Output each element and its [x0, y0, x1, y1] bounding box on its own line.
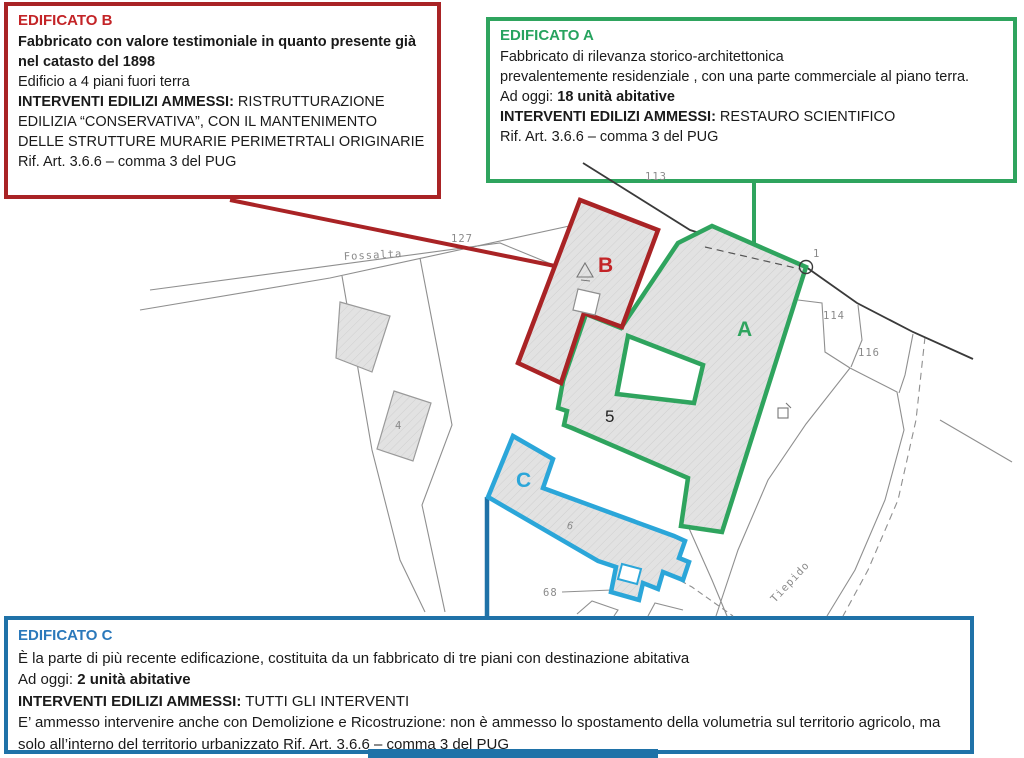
- point-label-1: 1: [813, 248, 820, 260]
- building-a-outline: [558, 226, 806, 532]
- road-edge-upper: [140, 215, 620, 310]
- callout-c-desc: È la parte di più recente edificazione, …: [18, 648, 960, 670]
- parcel-line-southeast: [688, 526, 727, 616]
- neighbour-buildings: [336, 302, 431, 461]
- parcel-114-boundary: [798, 300, 850, 368]
- well-symbol: [778, 403, 791, 418]
- bottom-accent-bar: [368, 749, 658, 758]
- callout-b-description: Fabbricato con valore testimoniale in qu…: [18, 32, 427, 72]
- small-parcel-line-1: [577, 601, 618, 616]
- callout-a-title: EDIFICATO A: [500, 26, 1003, 46]
- callout-a-units: Ad oggi: 18 unità abitative: [500, 87, 1003, 107]
- callout-c-title: EDIFICATO C: [18, 625, 960, 647]
- building-c-outline: [488, 436, 689, 600]
- triangle-symbol: [577, 263, 593, 281]
- building-b-courtyard: [573, 289, 600, 315]
- road-label-fossalta: Fossalta: [344, 248, 403, 263]
- parcel-label-127: 127: [451, 233, 473, 245]
- parcel-boundary-mid: [420, 258, 452, 612]
- callout-c-units: Ad oggi: 2 unità abitative: [18, 669, 960, 691]
- planning-map-page: EDIFICATO B Fabbricato con valore testim…: [0, 0, 1024, 758]
- leader-line-b: [230, 200, 555, 266]
- building-b-letter: B: [598, 254, 613, 277]
- callout-c-interventi: INTERVENTI EDILIZI AMMESSI: TUTTI GLI IN…: [18, 691, 960, 713]
- label-68-leader: [562, 590, 612, 592]
- building-a-letter: A: [737, 318, 752, 341]
- dashed-section-line: [628, 552, 733, 616]
- parcel-label-5: 5: [605, 407, 614, 426]
- building-c-letter: C: [516, 469, 531, 492]
- parcel-lines: [140, 215, 1012, 616]
- parcel-label-6: 6: [565, 519, 576, 533]
- building-c-notch: [618, 564, 641, 584]
- neighbour-building-1: [336, 302, 390, 372]
- parcel-label-114: 114: [823, 310, 845, 322]
- callout-edificato-b: EDIFICATO B Fabbricato con valore testim…: [4, 2, 441, 199]
- callout-edificato-a: EDIFICATO A Fabbricato di rilevanza stor…: [486, 17, 1017, 183]
- callout-edificato-c: EDIFICATO C È la parte di più recente ed…: [4, 616, 974, 754]
- building-b-outline: [518, 200, 658, 383]
- callout-a-desc1: Fabbricato di rilevanza storico-architet…: [500, 47, 1003, 67]
- callout-b-rif: Rif. Art. 3.6.6 – comma 3 del PUG: [18, 152, 427, 172]
- callout-b-interventi: INTERVENTI EDILIZI AMMESSI: RISTRUTTURAZ…: [18, 92, 427, 152]
- dashed-boundary-east: [843, 337, 925, 616]
- parcel-116-right: [899, 334, 913, 393]
- stream-label-tiepido: Tiepido: [768, 559, 812, 605]
- branch-line: [940, 420, 1012, 462]
- parcel-label-116: 116: [858, 347, 880, 359]
- callout-a-interventi: INTERVENTI EDILIZI AMMESSI: RESTAURO SCI…: [500, 107, 1003, 127]
- callout-b-title: EDIFICATO B: [18, 11, 427, 31]
- stream-east-line: [827, 368, 904, 616]
- dashed-line-inside-a: [705, 247, 800, 269]
- neighbour-building-4: [377, 391, 431, 461]
- parcel-label-68: 68: [543, 587, 558, 599]
- parcel-boundary-west: [342, 276, 425, 612]
- callout-a-desc2: prevalentemente residenziale , con una p…: [500, 67, 1003, 87]
- small-parcel-line-2: [648, 603, 683, 616]
- boundary-point-marker: [800, 261, 813, 274]
- parcel-114-116-divider: [851, 305, 862, 367]
- callout-a-rif: Rif. Art. 3.6.6 – comma 3 del PUG: [500, 127, 1003, 147]
- boundary-tick: [745, 396, 760, 401]
- road-edge-lower: [150, 243, 556, 290]
- main-road-line: [583, 163, 973, 359]
- stream-west-line: [716, 368, 850, 616]
- parcel-label-4: 4: [395, 420, 402, 432]
- callout-b-line2: Edificio a 4 piani fuori terra: [18, 72, 427, 92]
